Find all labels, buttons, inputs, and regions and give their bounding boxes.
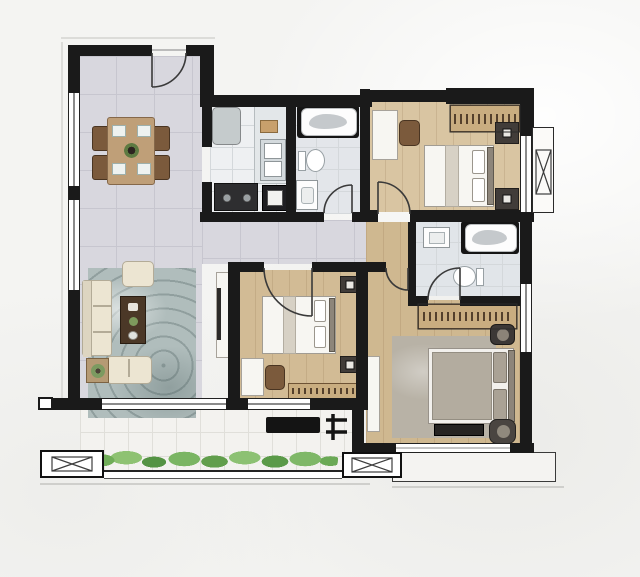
desk-chair	[399, 120, 420, 146]
headboard	[508, 350, 515, 422]
window	[68, 200, 80, 290]
floor-bay-master	[392, 452, 556, 482]
pipe-shaft	[38, 397, 53, 410]
desk-chair	[265, 365, 285, 390]
page-background: { "canvas": {"width": 640, "height": 577…	[0, 0, 640, 577]
wall	[460, 296, 522, 306]
wall	[286, 103, 296, 215]
bedside-unit	[495, 122, 519, 144]
column-box-right	[342, 452, 402, 478]
tv-screen	[217, 288, 221, 340]
headboard	[487, 147, 494, 205]
window	[520, 136, 532, 212]
wall	[360, 89, 370, 222]
guide-line-left	[61, 42, 63, 402]
sink-basin	[264, 143, 282, 159]
place-setting	[137, 125, 151, 137]
wall	[408, 222, 416, 296]
planter-greenery	[86, 446, 338, 472]
microwave	[260, 120, 278, 133]
floor-plan	[0, 0, 640, 577]
column-box-left	[40, 450, 104, 478]
bed-duvet	[432, 352, 492, 420]
toilet-tank	[476, 268, 484, 286]
wall	[408, 296, 428, 306]
desk	[372, 110, 398, 160]
vanity-sink	[296, 180, 318, 210]
bed-pillow	[493, 352, 507, 383]
place-setting	[137, 163, 151, 175]
wall	[368, 210, 378, 222]
vanity-sink	[423, 227, 450, 248]
wall	[68, 45, 152, 56]
bed-pillow	[472, 150, 485, 174]
bay-window-bedroom-2	[532, 127, 554, 213]
round-chair	[489, 419, 516, 444]
balcony-sliding-door	[102, 398, 226, 410]
master-bay-window	[396, 443, 510, 453]
tv-console	[434, 424, 484, 436]
window	[520, 284, 532, 352]
wardrobe	[288, 383, 358, 399]
bed-pillow	[314, 300, 326, 322]
coffee-table	[120, 296, 146, 344]
nightstand	[490, 324, 515, 345]
cooktop	[214, 183, 258, 211]
desk	[241, 358, 264, 396]
headboard	[329, 298, 335, 352]
bed-pillow	[314, 326, 326, 348]
wall	[68, 290, 80, 410]
window	[248, 398, 310, 410]
table-centerpiece	[124, 143, 139, 158]
wall	[410, 210, 534, 222]
guide-line-top	[61, 37, 215, 39]
tv-cabinet	[367, 356, 380, 432]
side-table-with-plant	[86, 358, 109, 383]
railing-shadow-line	[40, 483, 370, 485]
wall	[226, 398, 248, 410]
weight-bench	[266, 417, 320, 433]
window	[68, 93, 80, 186]
bathtub	[461, 221, 519, 254]
wall	[356, 262, 368, 410]
wall	[520, 352, 532, 453]
sofa	[82, 280, 112, 356]
bed-runner	[445, 145, 459, 207]
place-setting	[112, 125, 126, 137]
entry-threshold	[152, 49, 186, 51]
bedside-unit	[495, 188, 519, 210]
wall	[68, 45, 80, 93]
balcony-railing	[104, 470, 342, 479]
cabinet-inset	[267, 190, 283, 206]
toilet-tank	[298, 151, 306, 171]
place-setting	[112, 163, 126, 175]
wall	[200, 212, 324, 222]
loveseat	[106, 356, 152, 384]
wall	[202, 107, 212, 147]
bay-shadow-line	[392, 486, 564, 488]
wall	[228, 262, 240, 410]
wall	[68, 398, 102, 410]
armchair	[122, 261, 154, 287]
wall	[68, 186, 80, 200]
floor-hallway	[202, 220, 368, 264]
toilet-bowl	[306, 149, 325, 172]
bed-runner	[283, 296, 296, 354]
toilet-bowl	[453, 266, 476, 287]
wall	[360, 90, 452, 102]
wall	[52, 398, 68, 410]
bed-pillow	[493, 389, 507, 420]
sink-basin	[264, 161, 282, 177]
fridge	[212, 107, 241, 145]
wall	[310, 398, 368, 410]
bed-pillow	[472, 178, 485, 202]
wall	[520, 220, 532, 284]
wall	[312, 262, 386, 272]
bathtub	[297, 105, 359, 138]
